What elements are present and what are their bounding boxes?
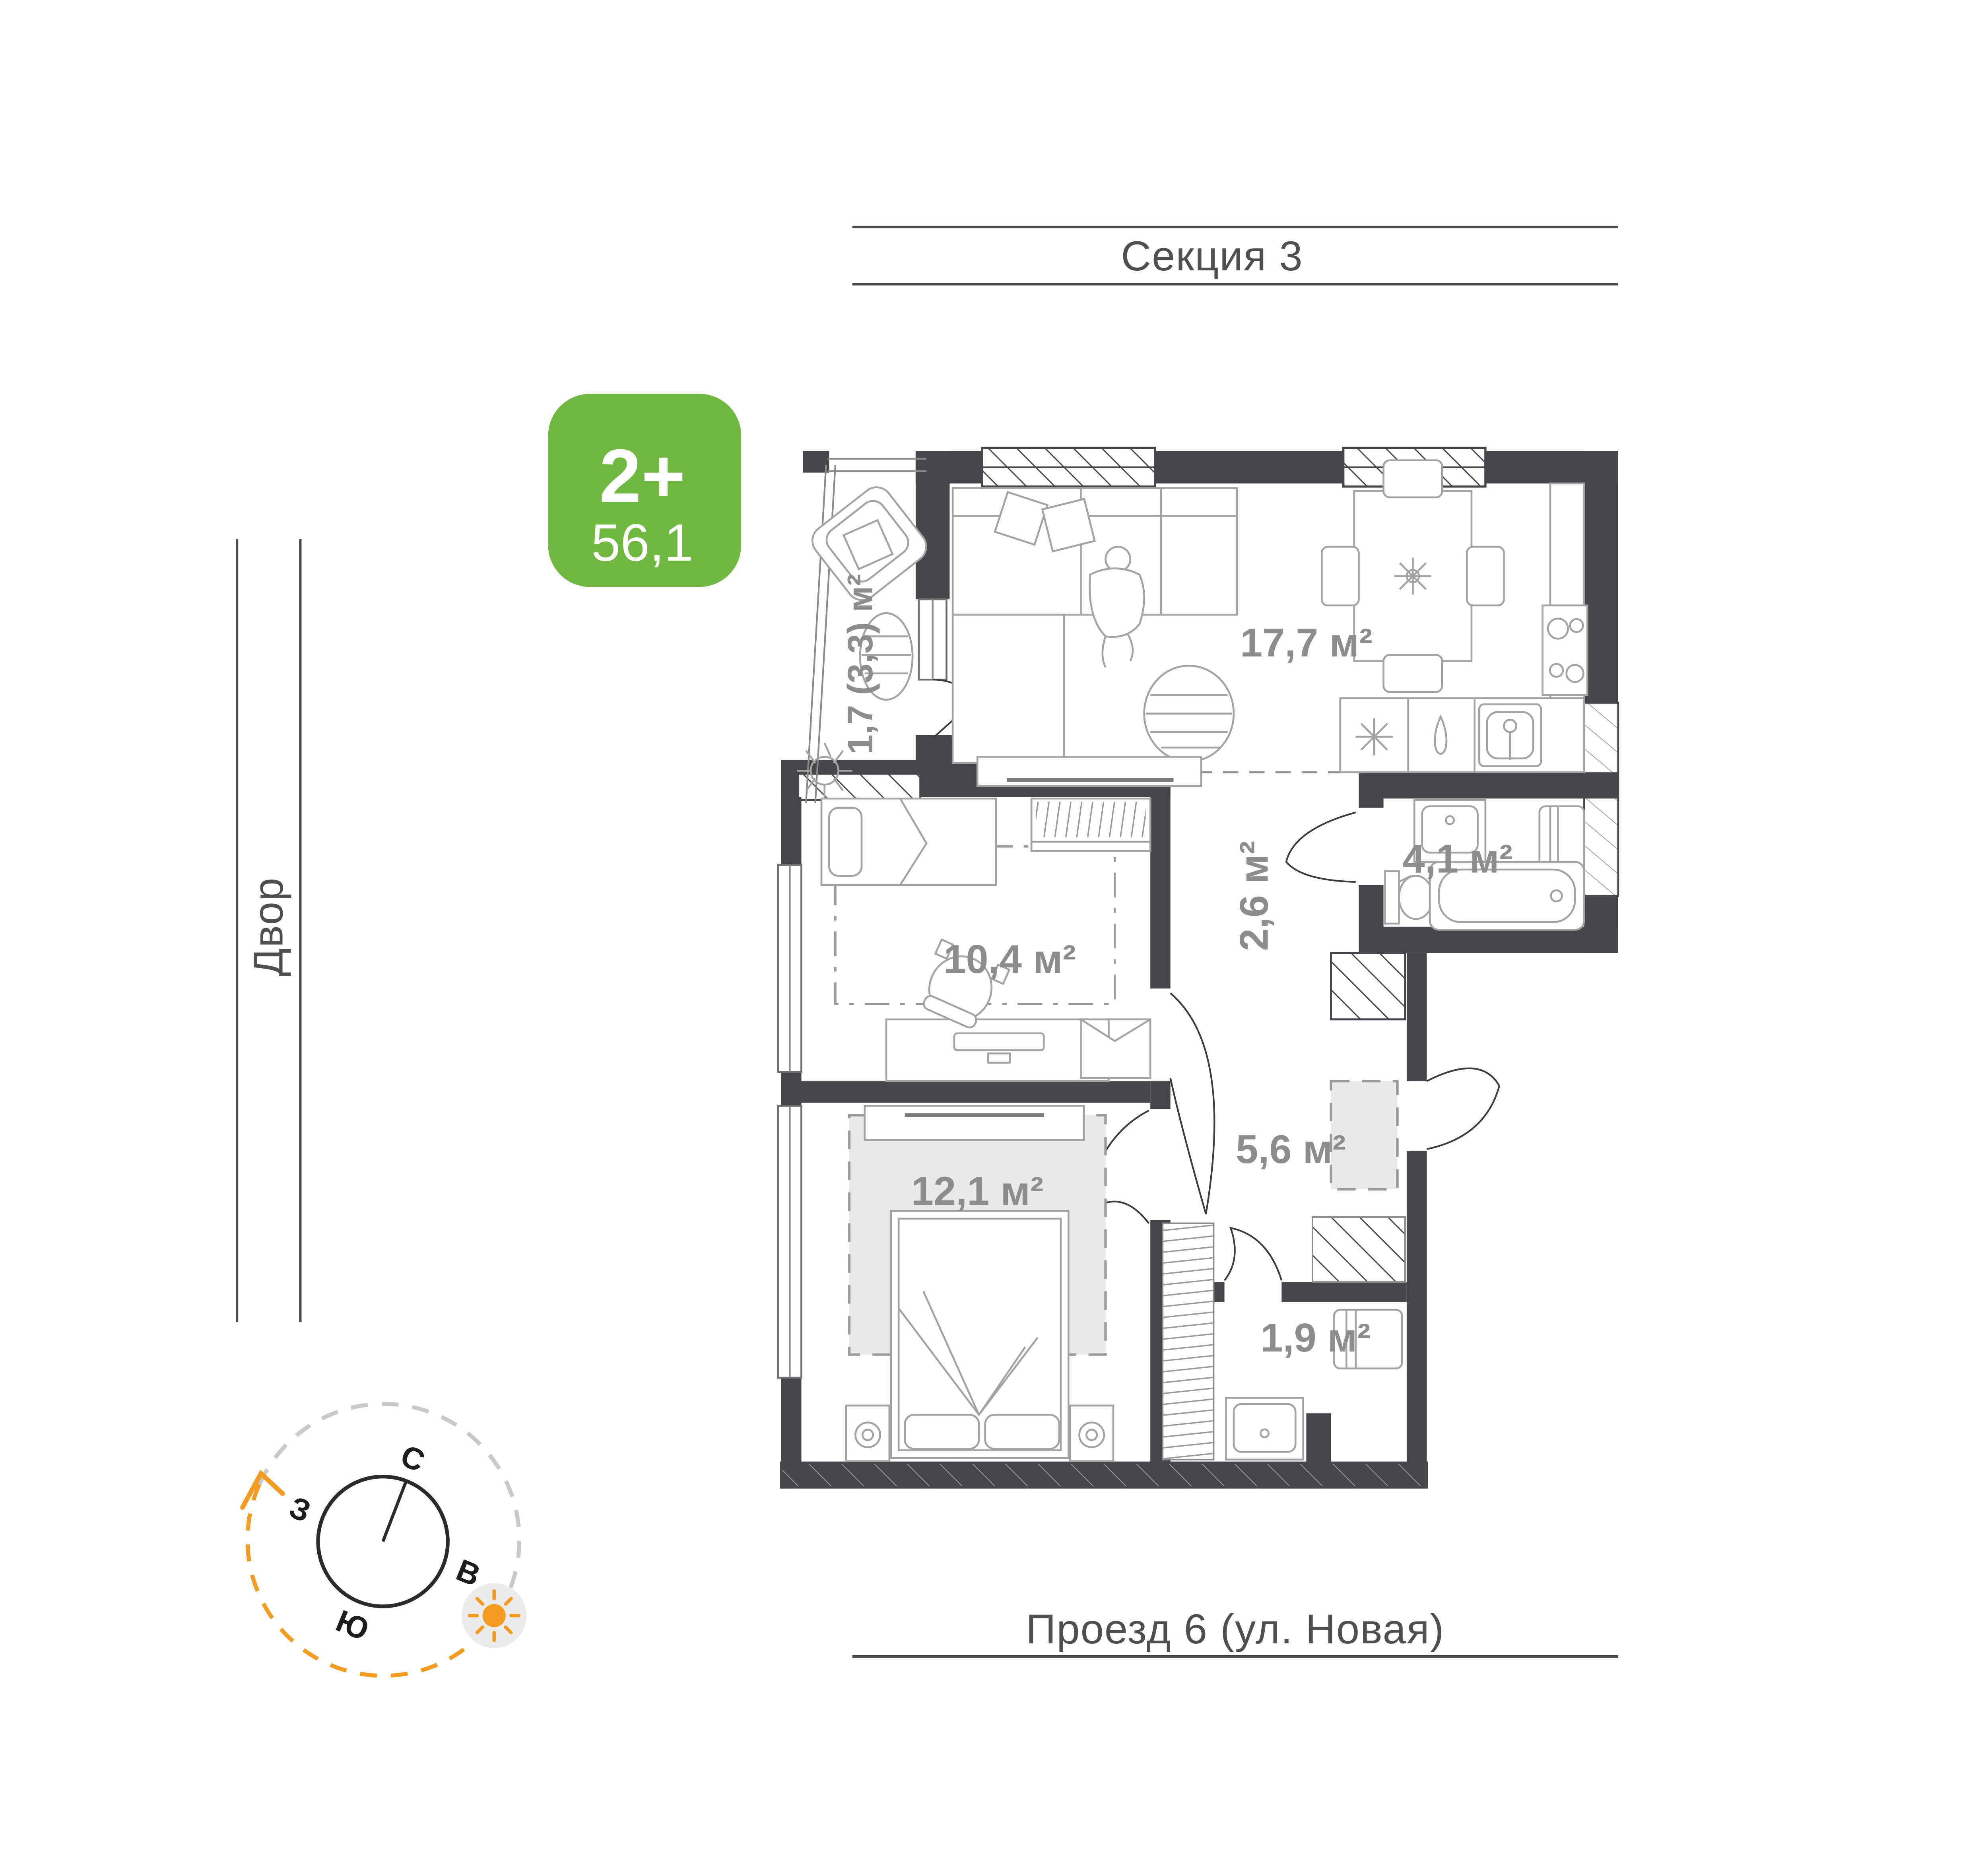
desk-monitor — [954, 1033, 1044, 1051]
nightstand-right-body — [1070, 1406, 1113, 1461]
sun-icon — [462, 1583, 526, 1648]
double-bed-pillow-2 — [985, 1415, 1059, 1449]
compass-west-label: З — [285, 1490, 315, 1529]
compass-north-label: С — [396, 1439, 429, 1479]
balcony-window-left-1 — [806, 465, 826, 803]
floorplan-canvas: Секция 3 Двор Проезд 8 (ул. Новая) Проез… — [0, 0, 1988, 1872]
sofa-chaise — [953, 615, 1064, 763]
side-table — [1081, 1020, 1150, 1078]
room-hall: 2,6 м² — [1232, 841, 1276, 951]
sun-core — [483, 1604, 506, 1627]
person-legs — [1103, 633, 1133, 667]
room-bedroom-small: 10,4 м² — [821, 798, 1150, 1081]
room-living-kitchen: 17,7 м² — [953, 460, 1587, 786]
corridor-cabinet-block — [1312, 1217, 1405, 1282]
entrance-door — [1427, 1068, 1499, 1149]
toilet-bowl — [1399, 876, 1433, 919]
laundry-sink — [1226, 1398, 1303, 1459]
section-label: Секция 3 — [1121, 233, 1303, 280]
double-bed — [891, 1211, 1069, 1458]
wall-right-hatch — [1584, 703, 1618, 896]
wall-left-2 — [781, 1072, 801, 1106]
room-corridor: 5,6 м² — [1236, 1081, 1397, 1189]
room-label-laundry: 1,9 м² — [1260, 1316, 1371, 1360]
room-label-bedroom-small: 10,4 м² — [944, 937, 1076, 982]
wall-balcony-right — [916, 451, 949, 599]
wall-bottom-hatched — [781, 1463, 1427, 1488]
stove-body — [1543, 606, 1588, 695]
wall-corridor-right — [1407, 1151, 1427, 1488]
dining-chair-left — [1322, 547, 1359, 606]
wall-hall-left-upper — [1150, 785, 1170, 988]
sofa-pillow-2 — [1042, 499, 1095, 552]
kitchen-counter-bottom — [1340, 698, 1584, 772]
street-left: Двор — [237, 539, 300, 1322]
street-bottom: Проезд 6 (ул. Новая) — [852, 1606, 1618, 1656]
dining-chair-bottom — [1384, 655, 1442, 692]
stove — [1543, 606, 1588, 695]
street-bottom-label: Проезд 6 (ул. Новая) — [1026, 1606, 1444, 1653]
nightstand-right — [1070, 1406, 1113, 1461]
double-bed-pillow-1 — [905, 1415, 979, 1449]
compass-needle — [383, 1481, 406, 1541]
table-flower — [1394, 557, 1431, 594]
single-bed-pillow — [829, 808, 862, 876]
dining-chair-top — [1384, 460, 1442, 497]
laundry-door — [1225, 1228, 1282, 1280]
room-label-balcony: 1,7 (3,3) м² — [840, 574, 880, 754]
wall-entry-pier-top — [1407, 953, 1427, 1081]
room-bedroom-master: 12,1 м² — [846, 1106, 1113, 1461]
fridge-snowflake-icon — [1356, 718, 1393, 755]
wardrobe-strip — [1163, 1223, 1213, 1460]
master-tv-console — [865, 1106, 1084, 1140]
wall-hall-left-mid — [1150, 1081, 1170, 1109]
wall-laundry-top-right — [1281, 1282, 1407, 1302]
compass-south-label: Ю — [331, 1604, 373, 1647]
table-flower-petals — [1394, 557, 1431, 594]
floorplan: 17,7 м² 1,7 (3,3) м² — [778, 448, 1618, 1488]
single-bed — [821, 798, 996, 885]
room-label-bathroom: 4,1 м² — [1403, 837, 1513, 882]
bedroom-small-door — [1171, 993, 1215, 1214]
compass: С В Ю З — [243, 1404, 527, 1676]
wall-left-1 — [781, 797, 801, 865]
living-rug — [1144, 666, 1234, 761]
street-left-label: Двор — [245, 877, 292, 977]
room-label-hall: 2,6 м² — [1232, 841, 1276, 951]
apartment-badge: 2+ 56,1 — [548, 394, 741, 587]
badge-area-value: 56,1 — [591, 513, 693, 572]
badge-rooms-count: 2+ — [599, 434, 685, 518]
wall-balcony-corner — [916, 735, 956, 763]
room-label-corridor: 5,6 м² — [1236, 1127, 1346, 1172]
room-bathroom: 4,1 м² — [1385, 800, 1584, 930]
balcony-window-left-2 — [815, 465, 835, 803]
bathroom-door — [1286, 812, 1356, 882]
nightstand-left — [846, 1406, 889, 1461]
nightstand-left-body — [846, 1406, 889, 1461]
dining-chair-right — [1467, 547, 1504, 606]
person-torso — [1090, 568, 1144, 637]
toilet-tank — [1385, 871, 1399, 924]
wall-bath-top — [1365, 772, 1618, 798]
room-balcony: 1,7 (3,3) м² — [797, 481, 932, 798]
wardrobe-small-bedroom — [1031, 798, 1150, 851]
kitchen-sink — [1479, 704, 1541, 766]
wall-bedrooms-divider — [802, 1081, 1151, 1103]
shaft-block — [1331, 953, 1405, 1020]
wall-laundry-stub — [1306, 1413, 1331, 1462]
desk-monitor-stand — [988, 1053, 1010, 1062]
wall-bath-left-upper — [1359, 772, 1383, 808]
section-header: Секция 3 — [852, 227, 1618, 284]
room-label-living-kitchen: 17,7 м² — [1240, 621, 1373, 665]
room-label-bedroom-master: 12,1 м² — [911, 1169, 1044, 1214]
wardrobe-hangers — [1036, 802, 1146, 837]
